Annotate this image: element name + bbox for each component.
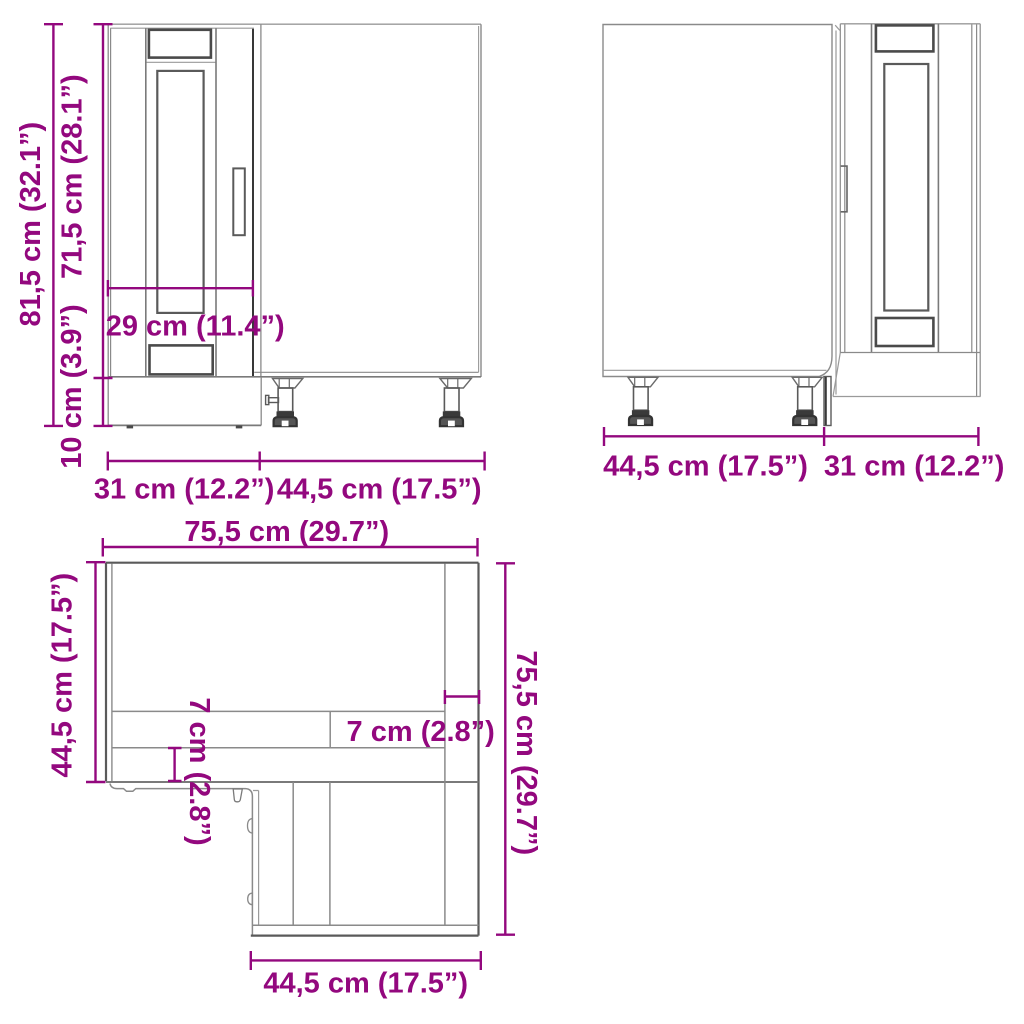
svg-text:81,5 cm (32.1”): 81,5 cm (32.1”) (15, 122, 47, 327)
svg-text:44,5 cm (17.5”): 44,5 cm (17.5”) (47, 573, 79, 778)
svg-text:7 cm (2.8”): 7 cm (2.8”) (183, 697, 215, 845)
svg-text:10 cm (3.9”): 10 cm (3.9”) (56, 304, 88, 468)
svg-text:7 cm (2.8”): 7 cm (2.8”) (347, 716, 495, 748)
svg-text:31 cm (12.2”): 31 cm (12.2”) (94, 474, 275, 506)
svg-text:29 cm (11.4”): 29 cm (11.4”) (106, 310, 285, 342)
svg-text:44,5 cm (17.5”): 44,5 cm (17.5”) (263, 968, 468, 1000)
svg-text:44,5 cm (17.5”): 44,5 cm (17.5”) (603, 451, 808, 483)
svg-text:31 cm (12.2”): 31 cm (12.2”) (824, 451, 1005, 483)
svg-text:44,5 cm (17.5”): 44,5 cm (17.5”) (277, 474, 482, 506)
svg-text:75,5 cm (29.7”): 75,5 cm (29.7”) (184, 516, 389, 548)
svg-text:71,5 cm (28.1”): 71,5 cm (28.1”) (57, 74, 89, 279)
svg-text:75,5 cm (29.7”): 75,5 cm (29.7”) (510, 650, 542, 855)
